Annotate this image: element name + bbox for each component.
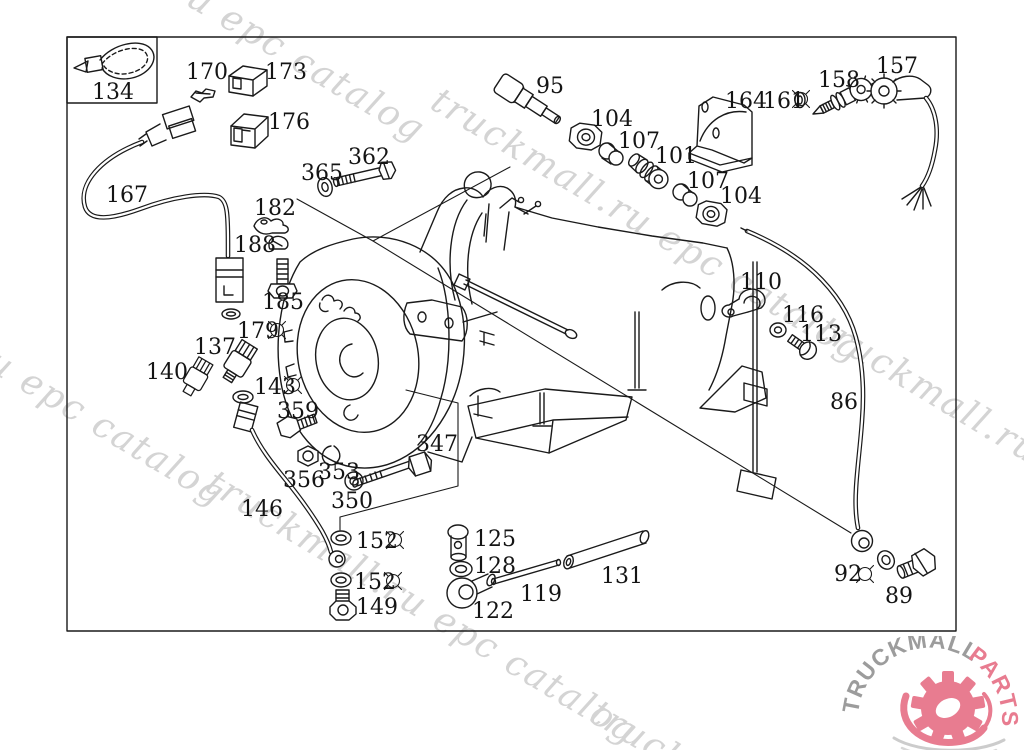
part-label-92: 92 bbox=[834, 562, 862, 587]
part-connector-173 bbox=[229, 66, 267, 96]
part-washer-128 bbox=[450, 562, 472, 577]
part-pin-125 bbox=[448, 525, 468, 561]
part-sensor-cable-167 bbox=[84, 106, 243, 319]
part-label-347: 347 bbox=[416, 432, 458, 457]
part-label-140: 140 bbox=[146, 360, 188, 385]
part-bolt-149 bbox=[330, 590, 356, 620]
part-cable-tie-134 bbox=[74, 43, 154, 79]
part-label-173: 173 bbox=[265, 60, 307, 85]
part-label-107: 107 bbox=[618, 129, 660, 154]
part-label-161: 161 bbox=[763, 89, 805, 114]
part-label-143: 143 bbox=[254, 375, 296, 400]
parts-catalog-page: truckmall.ru epc catalogtruckmall.ru epc… bbox=[0, 0, 1024, 750]
part-terminal-170 bbox=[191, 89, 215, 102]
part-label-353: 353 bbox=[318, 460, 360, 485]
part-label-104: 104 bbox=[720, 184, 762, 209]
part-label-119: 119 bbox=[520, 582, 562, 607]
part-label-362: 362 bbox=[348, 145, 390, 170]
part-label-176: 176 bbox=[268, 110, 310, 135]
part-label-110: 110 bbox=[740, 270, 782, 295]
part-label-182: 182 bbox=[254, 196, 296, 221]
part-washer-92 bbox=[874, 548, 897, 572]
part-washer-143 bbox=[233, 391, 253, 403]
part-label-158: 158 bbox=[818, 68, 860, 93]
part-label-128: 128 bbox=[474, 554, 516, 579]
part-label-125: 125 bbox=[474, 527, 516, 552]
part-label-122: 122 bbox=[472, 599, 514, 624]
part-label-179: 179 bbox=[237, 319, 279, 344]
part-label-86: 86 bbox=[830, 390, 858, 415]
part-connector-176 bbox=[231, 114, 268, 148]
truckmall-logo: TRUCKMALL PARTS bbox=[828, 636, 1024, 750]
part-label-137: 137 bbox=[194, 335, 236, 360]
part-label-101: 101 bbox=[655, 144, 697, 169]
part-label-113: 113 bbox=[800, 322, 842, 347]
part-label-365: 365 bbox=[301, 161, 343, 186]
part-label-350: 350 bbox=[331, 489, 373, 514]
part-label-170: 170 bbox=[186, 60, 228, 85]
part-washer-152-upper bbox=[331, 531, 351, 545]
part-nut-356 bbox=[298, 446, 318, 466]
part-label-134: 134 bbox=[92, 80, 134, 105]
part-connector-157 bbox=[867, 74, 937, 210]
part-label-157: 157 bbox=[876, 54, 918, 79]
part-washer-152-lower bbox=[331, 573, 351, 587]
part-label-152: 152 bbox=[356, 529, 398, 554]
part-label-185: 185 bbox=[262, 290, 304, 315]
part-label-359: 359 bbox=[277, 399, 319, 424]
part-label-131: 131 bbox=[601, 564, 643, 589]
part-label-188: 188 bbox=[234, 233, 276, 258]
part-label-164: 164 bbox=[725, 89, 767, 114]
part-label-167: 167 bbox=[106, 183, 148, 208]
part-label-95: 95 bbox=[536, 74, 564, 99]
part-label-146: 146 bbox=[241, 497, 283, 522]
part-label-89: 89 bbox=[885, 584, 913, 609]
part-bolt-89 bbox=[893, 546, 939, 584]
part-label-149: 149 bbox=[356, 595, 398, 620]
part-label-152: 152 bbox=[354, 570, 396, 595]
